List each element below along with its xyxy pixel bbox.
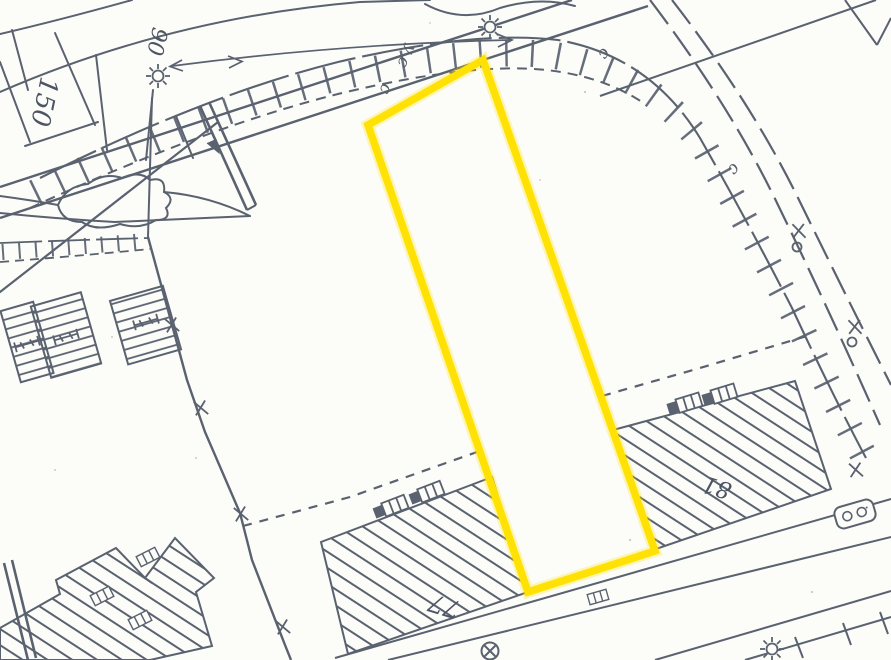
diagonal-path-lines xyxy=(0,0,891,218)
garage-buildings xyxy=(0,286,181,382)
street-90-label: 90 xyxy=(141,25,172,58)
car-symbol xyxy=(833,498,878,530)
street2-edge-2 xyxy=(745,617,891,660)
map-canvas: 81 77 81 xyxy=(0,0,891,660)
street-lamp-icon xyxy=(760,637,784,660)
bottom-left-complex: 81 xyxy=(0,538,214,660)
parcel-150-label: 150 xyxy=(24,74,64,129)
manhole-icon xyxy=(482,643,499,660)
garage-3 xyxy=(110,286,181,365)
letter-c4: c xyxy=(723,159,745,179)
letter-c3: c xyxy=(593,44,615,63)
street-lamp-icon xyxy=(146,64,170,88)
street-lamp-icon xyxy=(478,15,502,39)
tick-band-small xyxy=(0,238,150,262)
field-road-right xyxy=(650,0,891,425)
road-grate xyxy=(587,589,609,604)
cadastral-map-scan: 81 77 81 xyxy=(0,0,891,660)
